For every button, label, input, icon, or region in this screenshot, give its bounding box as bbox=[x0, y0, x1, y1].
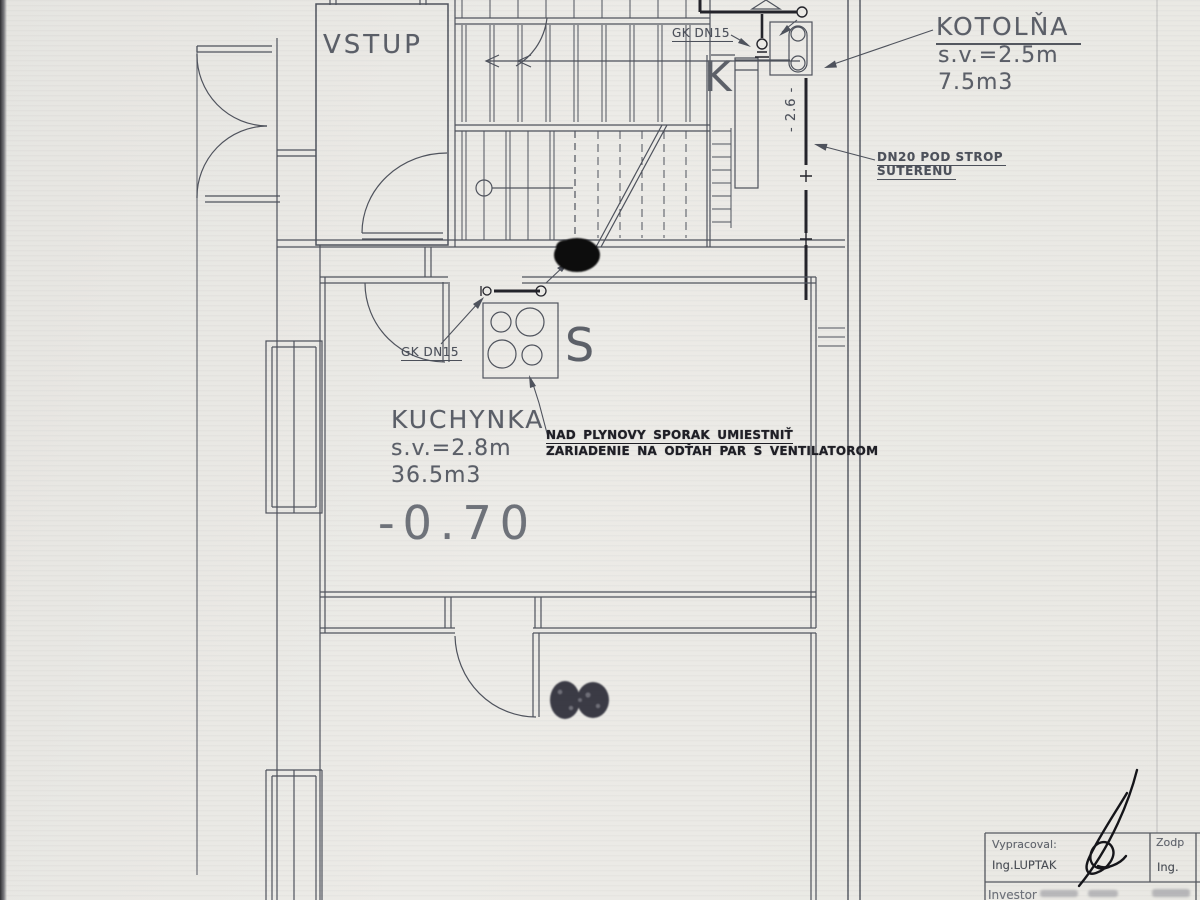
stove-letter-s: S bbox=[565, 318, 594, 372]
windows bbox=[266, 341, 322, 900]
kuchynka-height: s.v.=2.8m bbox=[391, 436, 512, 461]
pipe-fitting-icon bbox=[797, 7, 807, 17]
leader-arrows bbox=[441, 20, 933, 437]
chimney-shaft bbox=[735, 58, 758, 188]
stair-door-swing bbox=[516, 18, 547, 66]
titleblock-author-name: Ing.LUPTAK bbox=[992, 858, 1056, 872]
gas-valve-icon bbox=[755, 39, 769, 57]
riser-dimension: - 2.6 - bbox=[784, 87, 799, 132]
titleblock-author-label: Vypracoval: bbox=[992, 838, 1057, 851]
room-label-kuchynka: KUCHYNKA bbox=[391, 405, 544, 434]
ladder-icon bbox=[712, 128, 731, 228]
ink-blot-1 bbox=[554, 238, 600, 272]
ink-blot-2 bbox=[550, 681, 609, 719]
pipe-label-dn20-line2: SUTERENU bbox=[877, 164, 956, 180]
room-label-kotolna: KOTOLŇA bbox=[936, 12, 1081, 45]
vstup-door-leaf bbox=[362, 233, 443, 239]
entrance-double-door bbox=[197, 46, 280, 202]
vstup-door-swing bbox=[362, 153, 447, 233]
stair-direction-line bbox=[596, 125, 667, 247]
gas-piping bbox=[481, 0, 812, 300]
lower-door-swing bbox=[455, 636, 536, 717]
ink-blots bbox=[550, 238, 609, 719]
titleblock-responsible-label: Zodp bbox=[1156, 836, 1184, 849]
scan-edge-shadow bbox=[0, 0, 7, 900]
window-lower bbox=[266, 770, 322, 900]
window-upper bbox=[266, 341, 322, 513]
signature bbox=[1079, 770, 1137, 886]
boiler-icon bbox=[770, 22, 812, 75]
wall-vent bbox=[818, 328, 845, 346]
room-label-vstup: VSTUP bbox=[323, 30, 423, 60]
kotolna-volume: 7.5m3 bbox=[938, 70, 1013, 95]
gas-stove-icon bbox=[483, 303, 558, 378]
floor-level: -0.70 bbox=[378, 496, 537, 550]
pipe-label-gk-dn15-top: GK DN15 bbox=[672, 26, 733, 42]
lower-door-leaf bbox=[533, 633, 539, 717]
illegible-smudge bbox=[1040, 889, 1190, 897]
vent-triangle-icon bbox=[752, 0, 780, 9]
kuchynka-volume: 36.5m3 bbox=[391, 463, 481, 488]
boiler-letter-k: K bbox=[704, 52, 732, 101]
vent-annotation-line1: NAD PLYNOVY SPORAK UMIESTNIŤ bbox=[546, 428, 793, 444]
kotolna-height: s.v.=2.5m bbox=[938, 43, 1059, 68]
pipe-label-gk-dn15-kitchen: GK DN15 bbox=[401, 345, 462, 361]
staircase bbox=[455, 0, 800, 247]
title-block bbox=[985, 770, 1200, 900]
lower-room bbox=[320, 597, 816, 900]
scanned-floor-plan-page: VSTUP KOTOLŇA s.v.=2.5m 7.5m3 DN20 POD S… bbox=[0, 0, 1200, 900]
titleblock-responsible-name: Ing. bbox=[1157, 860, 1179, 874]
titleblock-investor-label: Investor bbox=[988, 888, 1037, 900]
vent-annotation-line2: ZARIADENIE NA ODŤAH PAR S VENTILATOROM bbox=[546, 444, 878, 458]
